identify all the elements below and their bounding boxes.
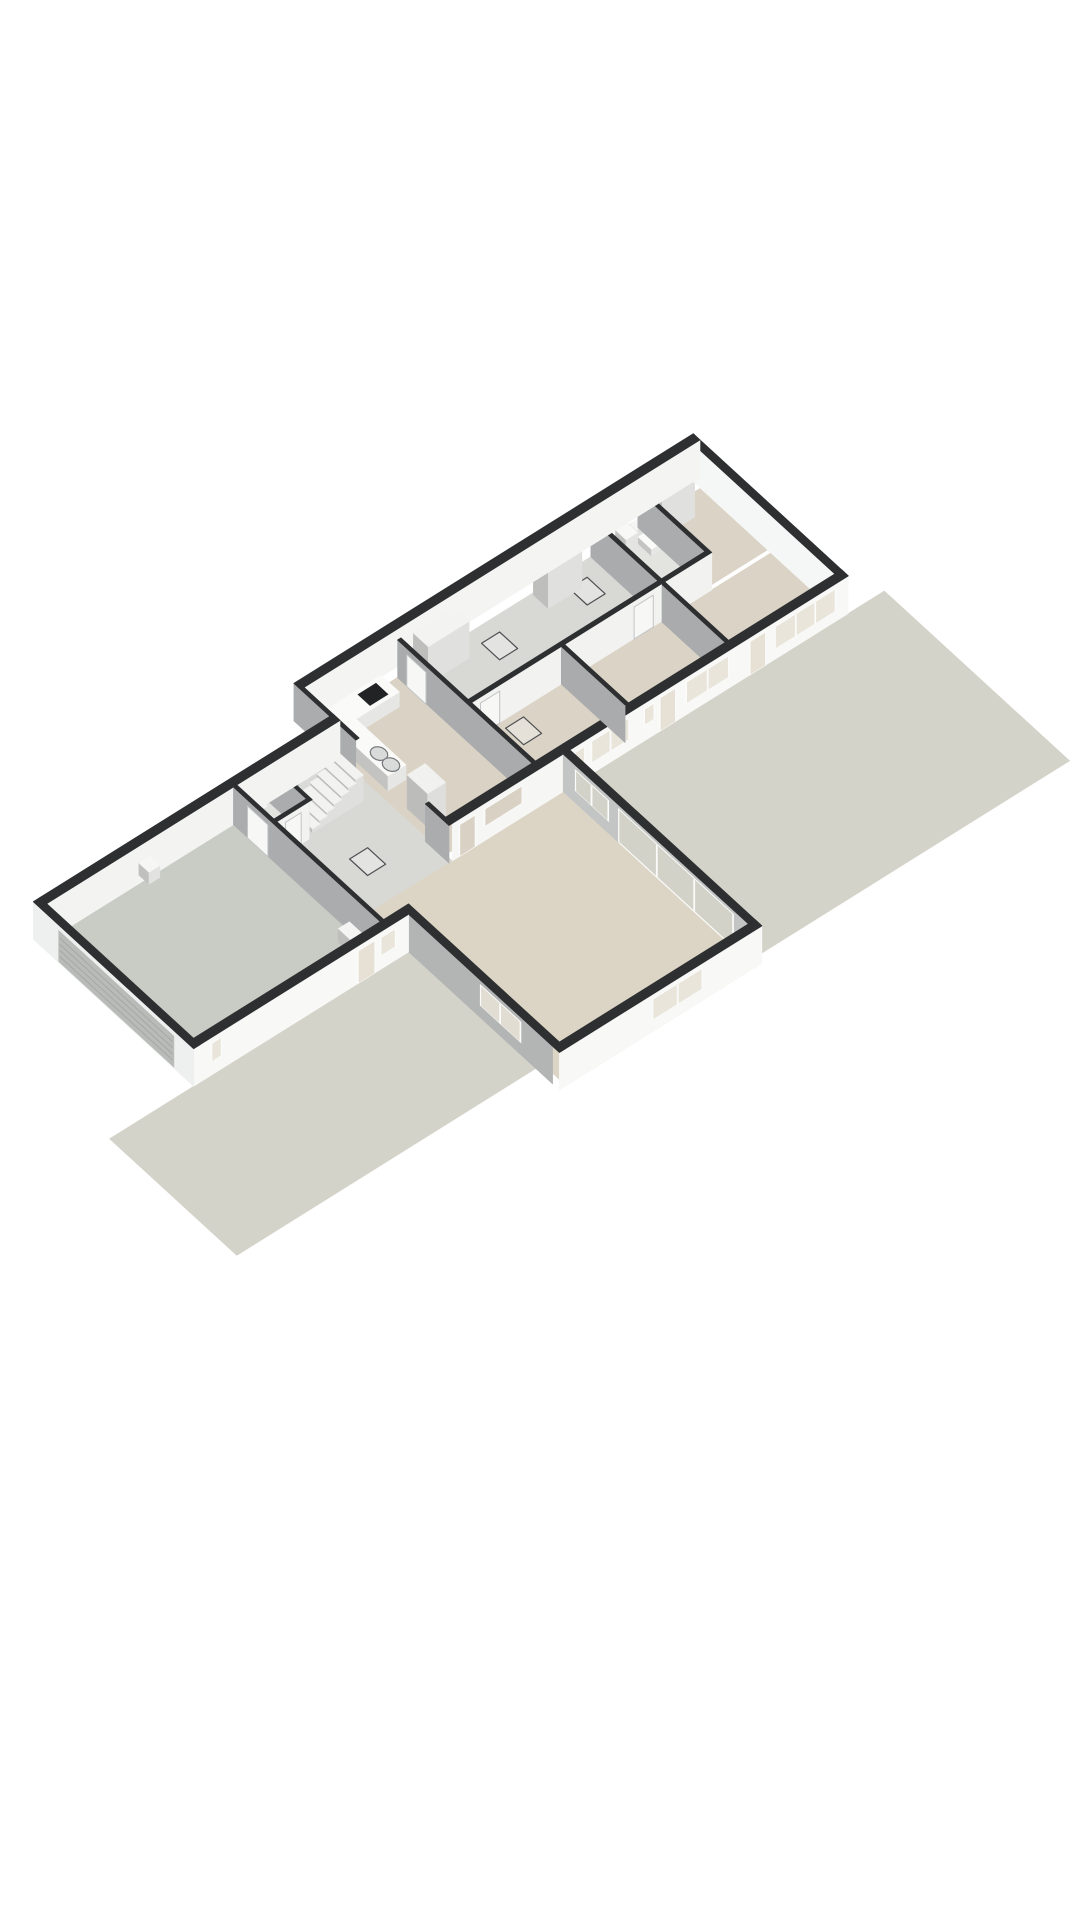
floorplan-viewport xyxy=(0,0,1080,1920)
floorplan-svg xyxy=(0,0,1080,1920)
floorplan-3d xyxy=(0,0,1080,1920)
